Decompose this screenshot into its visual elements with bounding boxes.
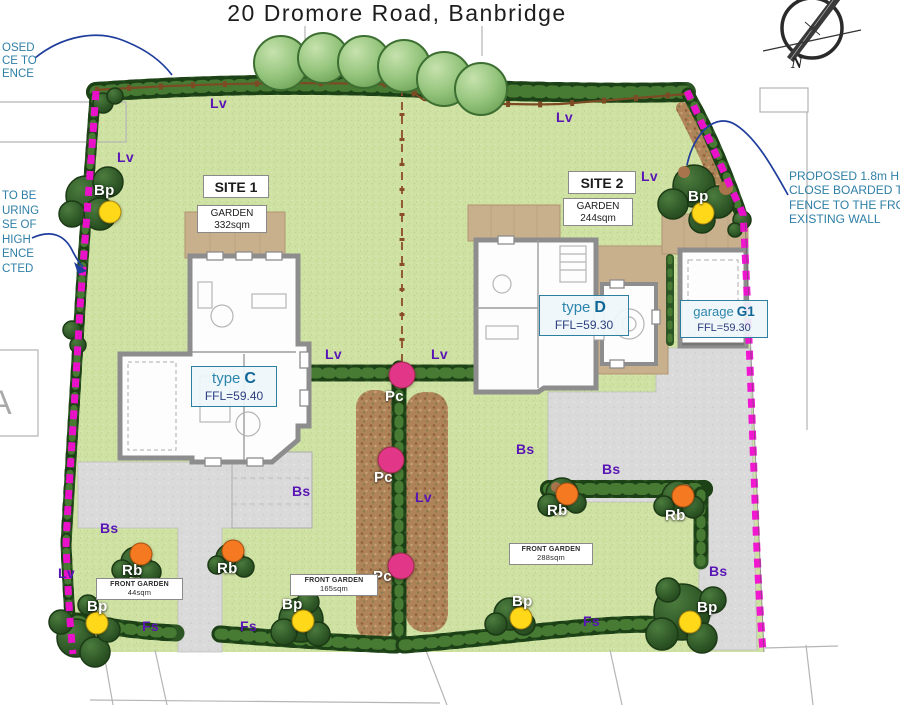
- garage-g1: [680, 250, 746, 346]
- compass-rose: [763, 0, 861, 62]
- site-plan-drawing: .h1{stroke:#2c5624;fill:none;stroke-line…: [0, 0, 900, 705]
- site-plan-page: .h1{stroke:#2c5624;fill:none;stroke-line…: [0, 0, 900, 705]
